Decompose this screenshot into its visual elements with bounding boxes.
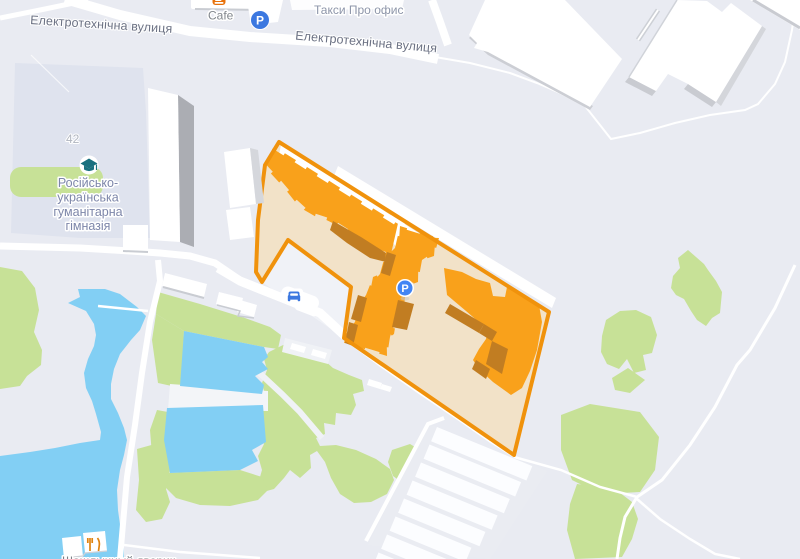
svg-text:P: P xyxy=(401,283,408,295)
svg-text:Російсько-: Російсько- xyxy=(58,176,118,190)
svg-text:Cafe: Cafe xyxy=(208,9,234,23)
svg-text:українська: українська xyxy=(57,191,119,205)
svg-text:гуманітарна: гуманітарна xyxy=(53,205,122,219)
svg-text:Такси Про офис: Такси Про офис xyxy=(314,3,403,17)
svg-text:Шашлычный дворик: Шашлычный дворик xyxy=(62,554,176,559)
svg-text:гімназія: гімназія xyxy=(66,219,111,233)
svg-text:42: 42 xyxy=(66,132,80,146)
svg-text:P: P xyxy=(256,14,264,28)
